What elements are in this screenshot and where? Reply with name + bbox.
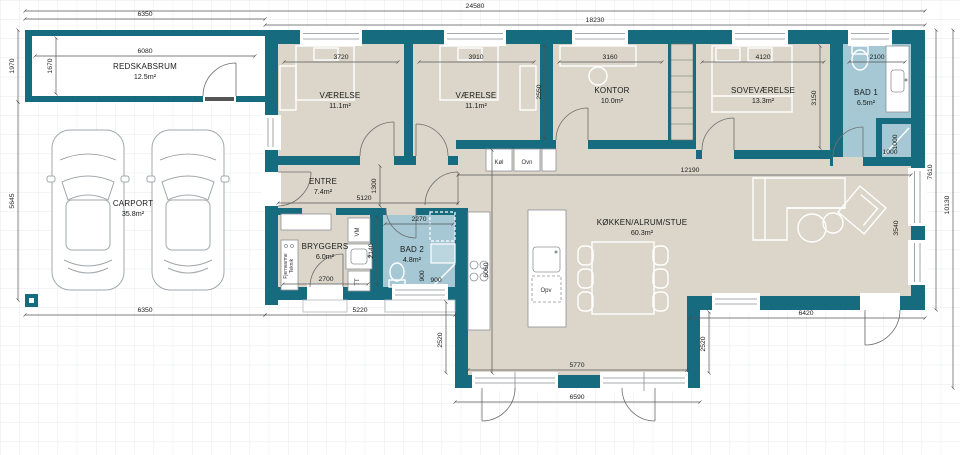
room-label-bad1: BAD 1 <box>854 88 878 97</box>
floor-plan-canvas: REDSKABSRUM 12.5m² CARPORT 35.8m² VÆRELS… <box>0 0 960 455</box>
car-2 <box>147 130 229 290</box>
dim-top-left: 6350 <box>137 11 152 18</box>
room-label-kontor: KONTOR <box>594 86 629 95</box>
dim-v-depth: 2550 <box>536 84 543 99</box>
window-ext-right <box>600 372 688 391</box>
terrace-door-opening <box>860 293 900 312</box>
room-label-vaerelse1: VÆRELSE <box>320 91 361 100</box>
dim-ext-right: 2520 <box>700 336 707 351</box>
washing-machine-label: VM <box>355 227 361 236</box>
dim-bad1-a: 1000 <box>892 134 899 149</box>
svg-text:60.3m²: 60.3m² <box>631 228 654 237</box>
dim-bad1-b: 1000 <box>882 149 897 156</box>
room-label-stue: KØKKEN/ALRUM/STUE <box>597 218 688 227</box>
dim-bad1: 2100 <box>869 54 884 61</box>
svg-text:7.4m²: 7.4m² <box>314 187 333 196</box>
dim-sove-depth: 3150 <box>811 90 818 105</box>
dim-carport-w: 6350 <box>137 307 152 314</box>
dim-redskab-h: 1670 <box>47 58 54 73</box>
dim-win-span: 3540 <box>893 220 900 235</box>
window-vaerelse1 <box>300 27 362 46</box>
closet-shelves <box>671 44 693 140</box>
dim-ext-w: 5770 <box>569 362 584 369</box>
dim-bad2-a: 900 <box>419 270 426 282</box>
fridge-label: Køl <box>495 160 504 166</box>
step-bad2 <box>385 300 455 312</box>
window-entre-west <box>262 115 281 150</box>
dim-kitchen-w: 12190 <box>681 167 700 174</box>
room-label-vaerelse2: VÆRELSE <box>456 91 497 100</box>
dim-terrace: 6420 <box>798 310 813 317</box>
svg-text:11.1m²: 11.1m² <box>329 101 351 110</box>
window-sovevaerelse <box>732 27 788 46</box>
dim-right-up: 7610 <box>927 164 934 179</box>
dim-entre: 5120 <box>356 195 371 202</box>
window-right-2 <box>908 240 927 285</box>
bad2-sink <box>431 244 455 263</box>
dim-bad2-b: 900 <box>430 277 442 284</box>
svg-text:35.8m²: 35.8m² <box>122 209 145 218</box>
bad1-partition <box>876 124 882 157</box>
window-vaerelse2 <box>444 27 506 46</box>
dim-kontor: 3160 <box>602 54 617 61</box>
dim-total-width: 24580 <box>466 3 485 10</box>
dim-bottom-left: 5220 <box>352 307 367 314</box>
kitchen-island <box>528 210 566 327</box>
dim-sove: 4120 <box>755 54 770 61</box>
dim-right-total: 10130 <box>944 195 951 214</box>
oven-label: Ovn <box>521 160 532 166</box>
dim-ext-total: 6590 <box>569 394 584 401</box>
dim-redskab-w: 6080 <box>137 48 152 55</box>
svg-text:11.1m²: 11.1m² <box>465 101 487 110</box>
carport-post <box>25 294 38 307</box>
window-living-south <box>712 293 760 312</box>
dim-bad2-w: 2270 <box>411 216 426 223</box>
dim-bryggers: 2700 <box>318 276 333 283</box>
svg-text:12.5m²: 12.5m² <box>134 72 157 81</box>
dim-redskab-outer: 1970 <box>9 58 16 73</box>
front-door-opening <box>262 172 281 206</box>
room-label-redskabsrum: REDSKABSRUM <box>113 62 177 71</box>
car-1 <box>47 130 129 290</box>
dim-v2: 3910 <box>468 54 483 61</box>
room-label-entre: ENTRE <box>309 177 337 186</box>
window-bad1 <box>848 27 892 46</box>
dim-bad2-d: 2140 <box>368 243 375 258</box>
window-kontor <box>572 27 628 46</box>
dim-hall: 1300 <box>371 178 378 193</box>
svg-text:6.5m²: 6.5m² <box>857 98 876 107</box>
dim-main-width: 18230 <box>586 17 605 24</box>
window-right-1 <box>908 168 927 226</box>
floor-plan-drawing: REDSKABSRUM 12.5m² CARPORT 35.8m² VÆRELS… <box>0 0 960 455</box>
bad1-partition <box>876 118 911 124</box>
svg-text:10.0m²: 10.0m² <box>601 96 624 105</box>
svg-text:6.0m²: 6.0m² <box>316 252 335 261</box>
dim-ext-left: 2520 <box>437 332 444 347</box>
svg-text:4.8m²: 4.8m² <box>403 255 422 264</box>
room-label-carport: CARPORT <box>113 199 153 208</box>
dim-kitchen-d: 6060 <box>483 262 490 277</box>
svg-text:13.3m²: 13.3m² <box>752 96 775 105</box>
step-bryggers <box>303 300 347 312</box>
tumble-dryer-label: TT <box>355 278 361 286</box>
room-label-bryggers: BRYGGERS <box>302 242 349 251</box>
room-label-bad2: BAD 2 <box>400 245 424 254</box>
redskabsrum-door-opening <box>203 93 236 105</box>
heating-label-2: Teknik <box>289 258 295 273</box>
dim-v1: 3720 <box>333 54 348 61</box>
room-label-sovevaerelse: SOVEVÆRELSE <box>731 86 795 95</box>
dishwasher-label: Opv <box>540 288 551 294</box>
dim-carport-h: 5645 <box>9 193 16 208</box>
